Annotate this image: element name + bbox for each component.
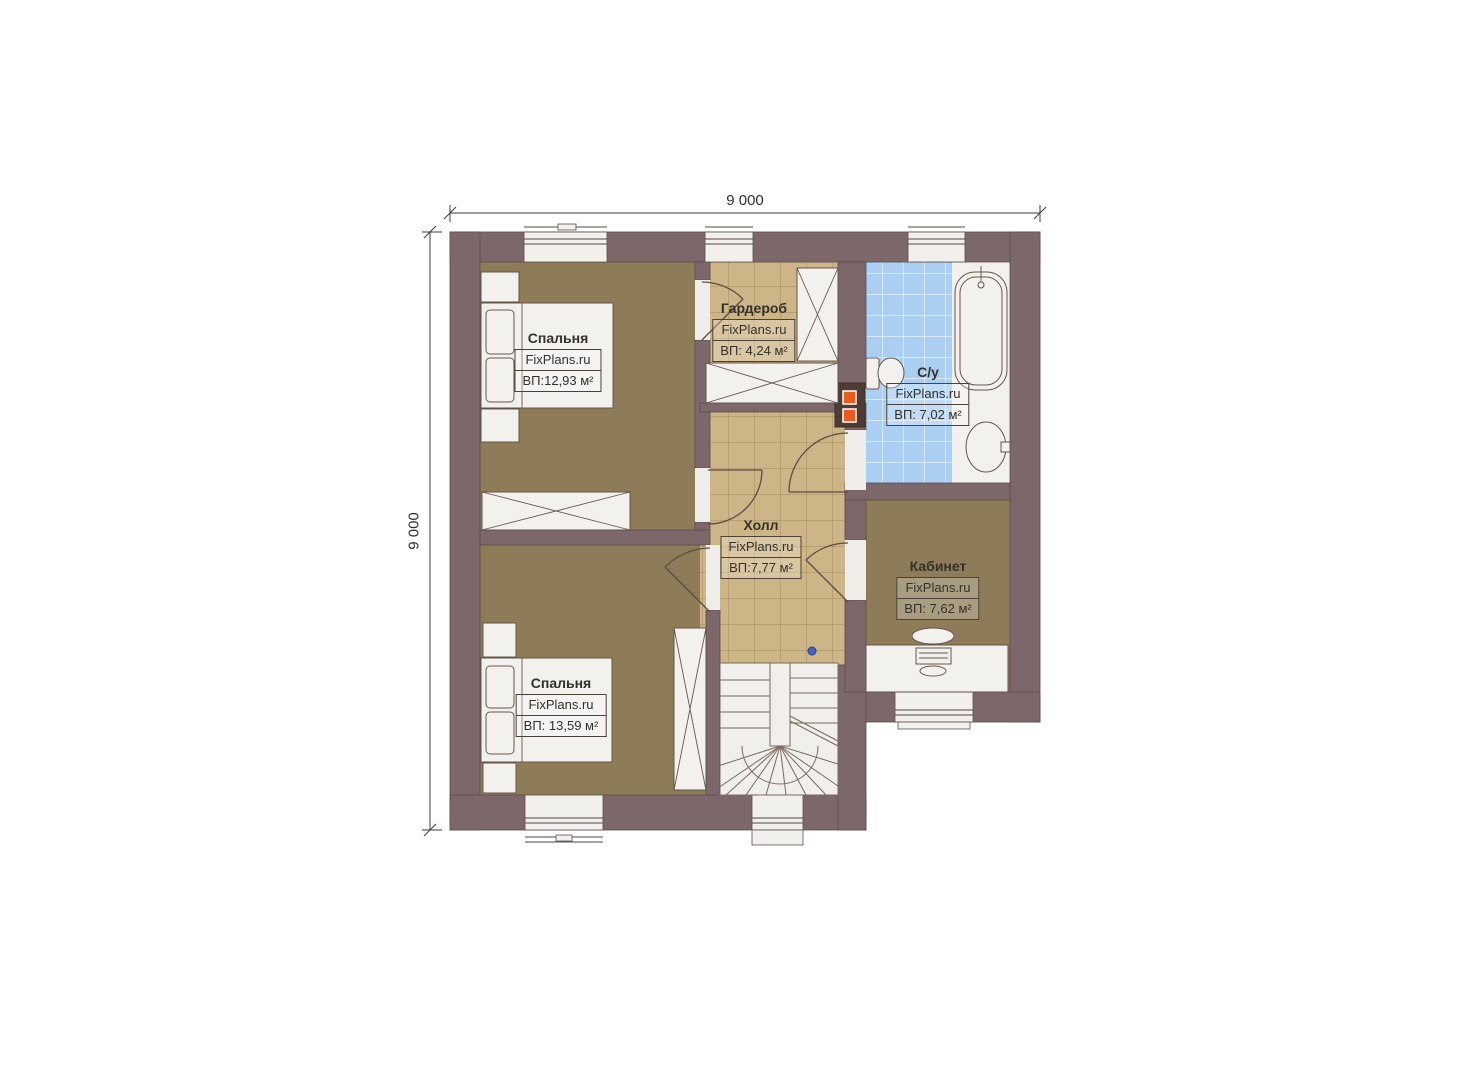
pillow [486,666,514,708]
wall-left [450,232,480,830]
room-label-wardrobe: Гардероб FixPlans.ru ВП: 4,24 м² [712,300,795,362]
room-brand: FixPlans.ru [516,694,607,716]
room-area: ВП: 4,24 м² [712,341,795,362]
room-name: Спальня [516,675,607,691]
room-name: Кабинет [896,558,979,574]
door-opening-office [845,540,866,600]
door-opening-wardrobe [695,280,710,340]
dimension-top-label: 9 000 [726,192,764,209]
room-brand: FixPlans.ru [712,319,795,341]
room-name: Гардероб [712,300,795,316]
wardrobe-cabinet [482,492,630,530]
chimney-block [835,383,865,427]
room-label-bedroom-2: Спальня FixPlans.ru ВП: 13,59 м² [516,675,607,737]
window-top-bedroom-1 [524,224,607,262]
door-opening-bedroom-2 [706,545,720,610]
stair-marker-dot [808,647,816,655]
window-office [895,692,973,729]
pillow [486,310,514,354]
room-name: Спальня [514,330,601,346]
pillow [486,712,514,754]
wall-bath-office-divider [845,483,1010,500]
room-brand: FixPlans.ru [886,383,969,405]
door-opening-bedroom-1 [695,468,710,522]
floor-plan-canvas: 9 000 9 000 Спальня FixPlans.ru ВП:12,93… [0,0,1474,1080]
wardrobe-cabinet [797,268,838,361]
wall-wardrobe-hall-divider [700,403,845,412]
window-top-bathroom [908,227,965,262]
chimney-flue-2 [843,409,856,422]
room-name: Холл [720,517,801,533]
room-label-hall: Холл FixPlans.ru ВП:7,77 м² [720,517,801,579]
room-brand: FixPlans.ru [514,349,601,371]
window-bottom-stairs [752,795,803,845]
wall-hall-right-3 [845,600,866,692]
dimension-left-label: 9 000 [406,512,423,550]
nightstand [481,272,519,302]
wall-right [1010,232,1040,722]
wall-bottom [450,795,866,830]
nightstand [483,623,516,657]
window-top-wardrobe [705,227,753,262]
room-area: ВП:12,93 м² [514,371,601,392]
room-area: ВП: 13,59 м² [516,716,607,737]
room-area: ВП: 7,62 м² [896,599,979,620]
room-brand: FixPlans.ru [720,536,801,558]
room-label-bathroom: С/у FixPlans.ru ВП: 7,02 м² [886,364,969,426]
room-label-office: Кабинет FixPlans.ru ВП: 7,62 м² [896,558,979,620]
wall-bathroom-left [838,262,866,383]
wall-center-a3 [695,522,710,530]
wall-bedrooms-divider [480,530,710,545]
window-bottom-bedroom-2 [525,795,603,842]
nightstand [481,409,519,442]
room-area: ВП:7,77 м² [720,558,801,579]
room-area: ВП: 7,02 м² [886,405,969,426]
nightstand [483,763,516,793]
floor-stairwell [712,663,838,795]
pillow [486,358,514,402]
door-opening-bathroom [845,430,866,490]
room-brand: FixPlans.ru [896,577,979,599]
wardrobe-cabinet [674,628,706,790]
room-label-bedroom-1: Спальня FixPlans.ru ВП:12,93 м² [514,330,601,392]
wardrobe-cabinet [706,363,838,403]
chimney-flue-1 [843,391,856,404]
wall-center-a1 [695,262,710,280]
room-name: С/у [886,364,969,380]
